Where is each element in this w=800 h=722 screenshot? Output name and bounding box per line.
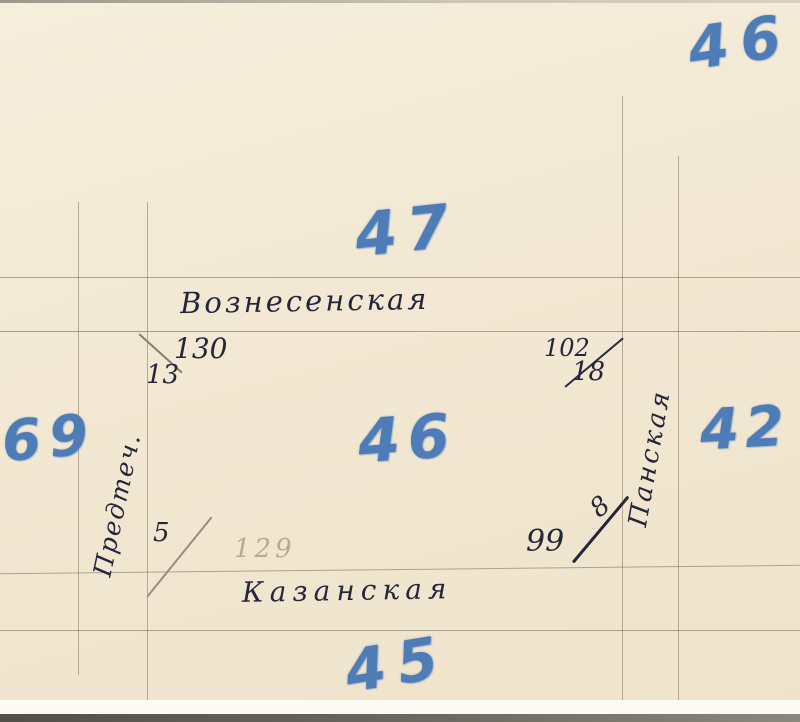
scan-edge-bottom-dark: [0, 714, 800, 722]
grid-line-vertical-east-inner: [622, 96, 623, 708]
plot-number-nw-upper: 130: [174, 332, 227, 365]
plot-number-sw-pencil: 129: [234, 534, 296, 564]
grid-line-horizontal-north-inner: [0, 331, 800, 332]
block-number-south: 45: [340, 622, 454, 706]
scan-edge-bottom-white: [0, 700, 800, 714]
plot-number-sw-ink: 5: [153, 518, 170, 548]
grid-line-vertical-west-inner: [147, 202, 148, 712]
plot-number-nw-lower: 13: [146, 360, 179, 390]
scanned-block-sketch: 46 47 46 42 69 45 Вознесенская Казанская…: [0, 0, 800, 722]
grid-line-vertical-east-outer: [678, 156, 679, 704]
grid-line-horizontal-north-outer: [0, 277, 800, 278]
page-number: 46: [684, 1, 797, 83]
street-name-south: Казанская: [242, 572, 453, 609]
block-number-center: 46: [356, 401, 460, 478]
street-name-east: Панская: [620, 367, 681, 549]
scan-edge-top: [0, 0, 800, 3]
street-name-north: Вознесенская: [180, 282, 430, 320]
plot-number-se-main: 99: [526, 524, 564, 559]
plot-number-ne-lower: 18: [572, 357, 605, 387]
block-number-north: 47: [352, 191, 462, 271]
block-number-east: 42: [698, 394, 791, 464]
block-number-west: 69: [0, 402, 99, 475]
